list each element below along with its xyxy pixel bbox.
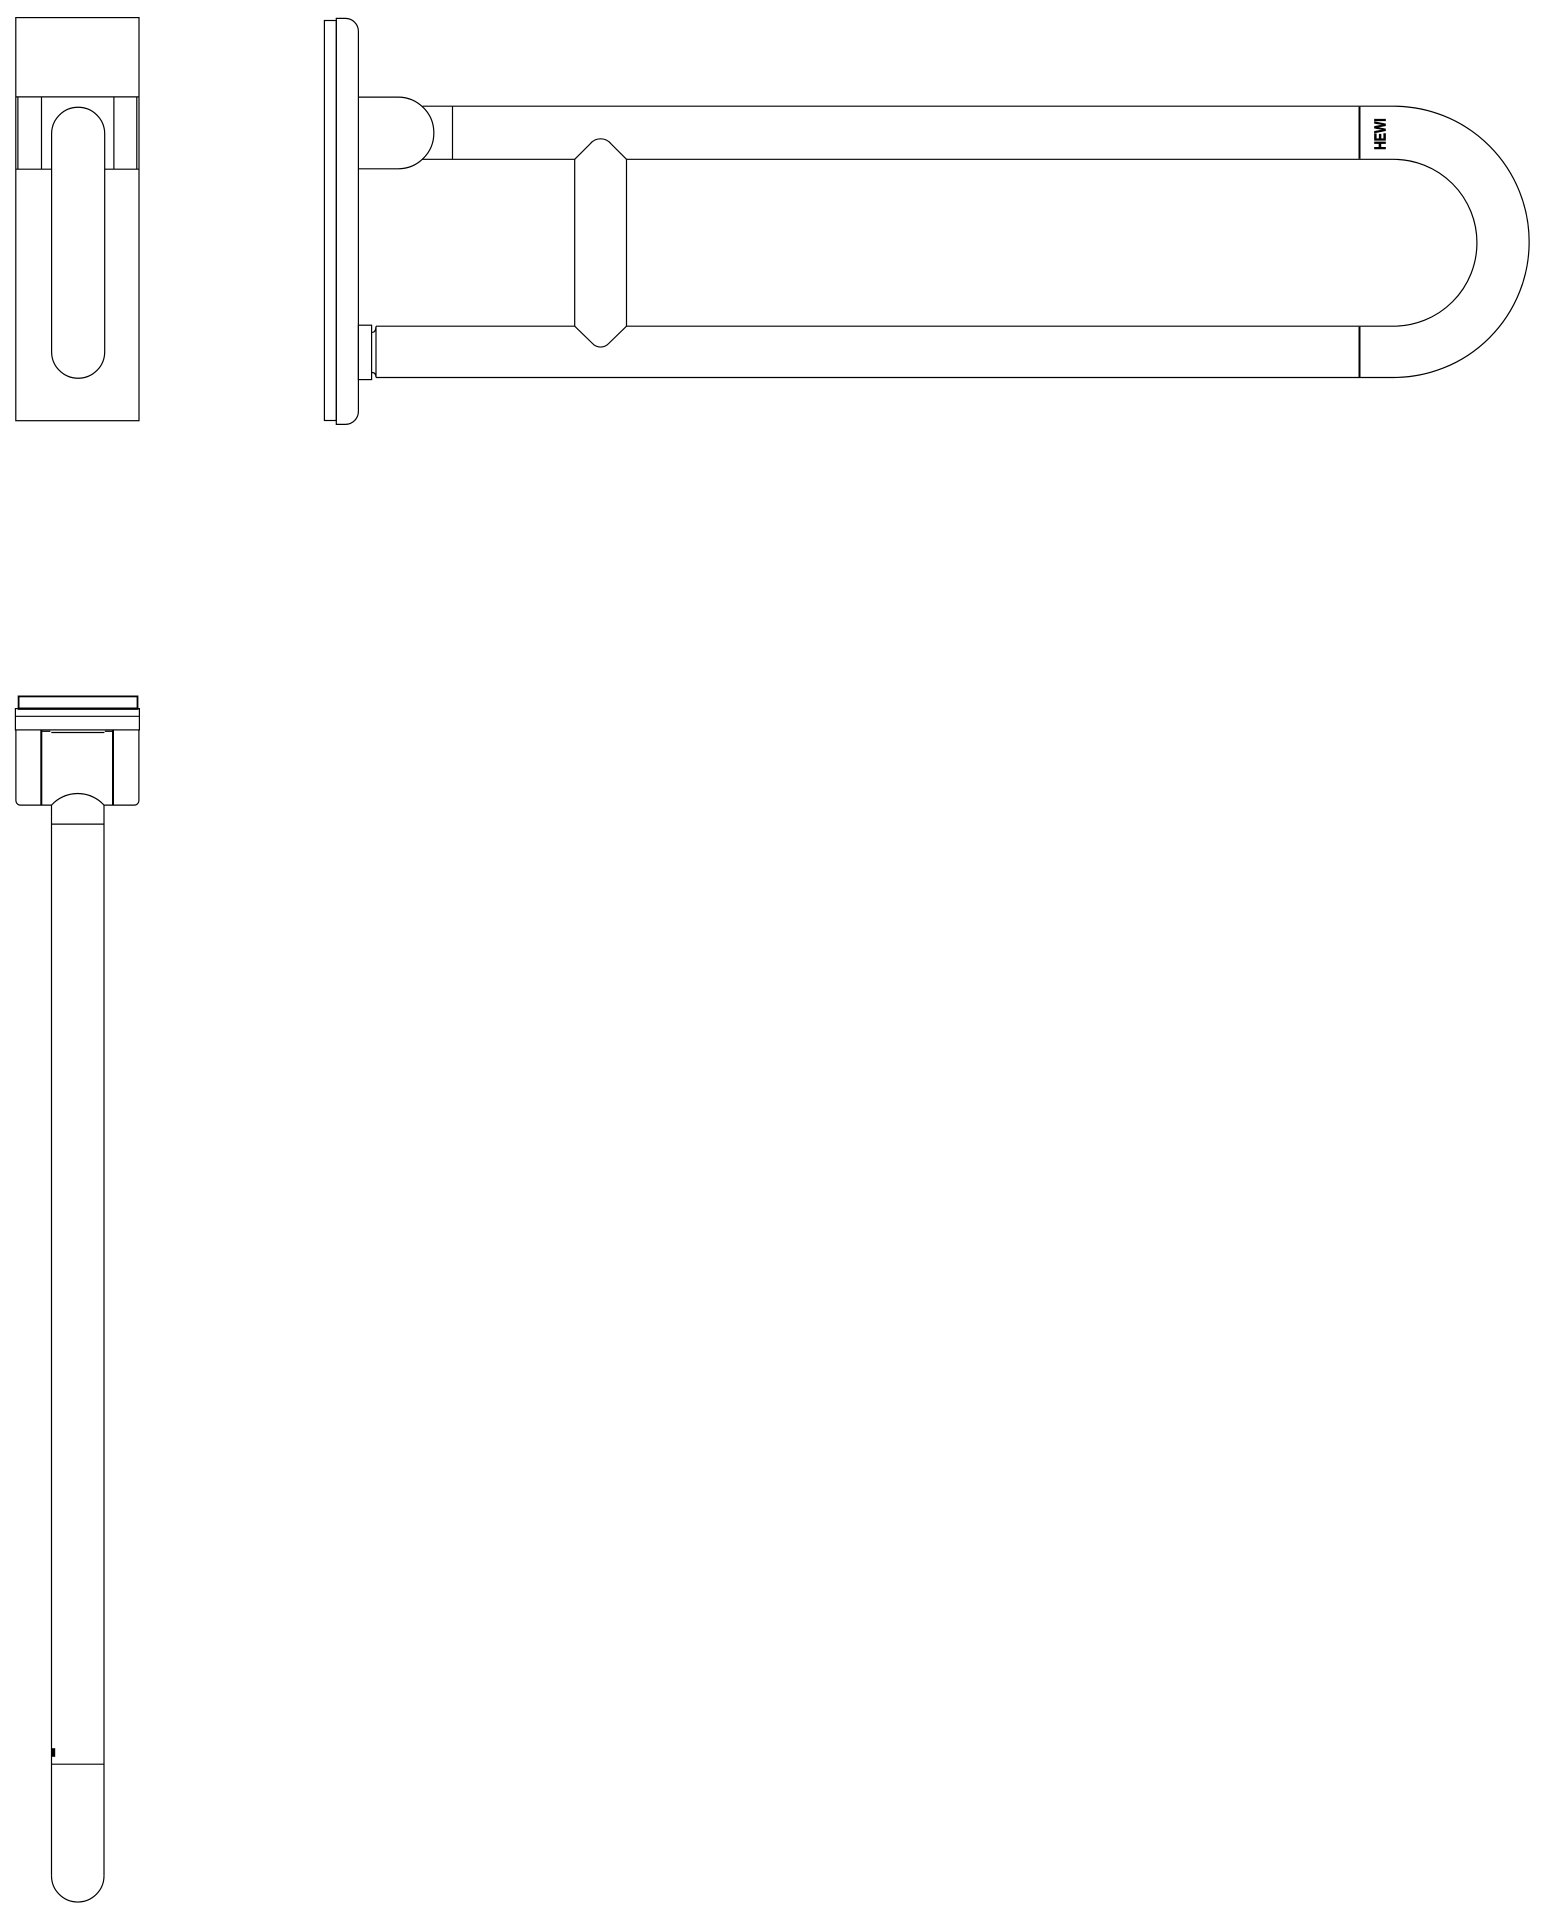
svg-text:HEWI: HEWI xyxy=(1373,118,1390,150)
